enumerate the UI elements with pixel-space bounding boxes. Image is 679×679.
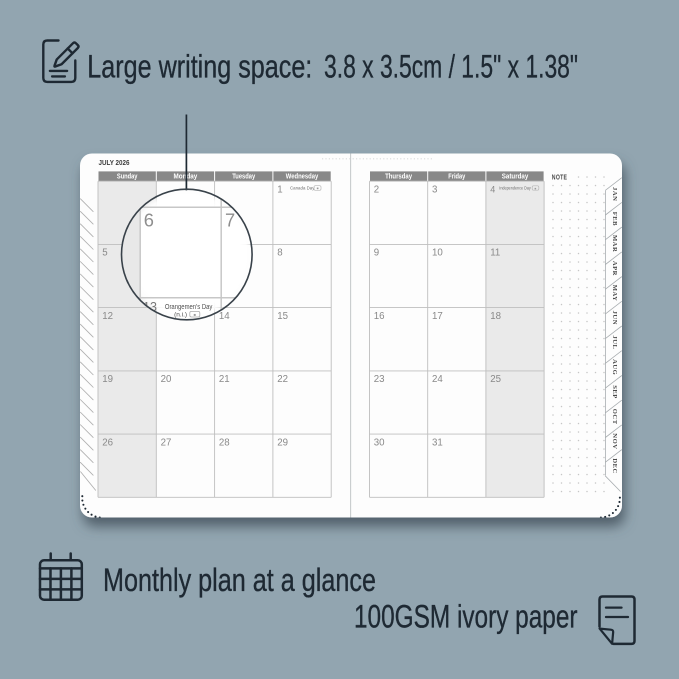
svg-text:28: 28 bbox=[219, 437, 230, 448]
svg-text:25: 25 bbox=[490, 374, 501, 385]
svg-text:11: 11 bbox=[490, 248, 500, 259]
svg-text:14: 14 bbox=[219, 311, 230, 322]
svg-text:Friday: Friday bbox=[448, 174, 465, 181]
svg-text:7: 7 bbox=[225, 210, 235, 231]
svg-text:SEP: SEP bbox=[611, 385, 618, 399]
svg-text:5: 5 bbox=[102, 248, 107, 259]
svg-text:3: 3 bbox=[432, 185, 437, 196]
svg-text:26: 26 bbox=[102, 437, 113, 448]
svg-text:Sunday: Sunday bbox=[117, 174, 138, 181]
svg-text:9: 9 bbox=[374, 248, 379, 259]
svg-text:4: 4 bbox=[490, 185, 495, 195]
svg-text:10: 10 bbox=[432, 248, 443, 259]
svg-text:Monthly plan at a glance: Monthly plan at a glance bbox=[103, 562, 376, 598]
svg-text:(n.i.): (n.i.) bbox=[174, 312, 187, 319]
svg-text:FEB: FEB bbox=[611, 212, 618, 226]
svg-text:Orangemen's Day: Orangemen's Day bbox=[165, 304, 213, 311]
svg-text:8: 8 bbox=[277, 248, 282, 259]
svg-text:AUG: AUG bbox=[611, 359, 618, 375]
svg-text:DEC: DEC bbox=[611, 458, 618, 473]
svg-text:Monday: Monday bbox=[174, 174, 198, 181]
svg-text:15: 15 bbox=[277, 311, 288, 322]
svg-text:JULY 2026: JULY 2026 bbox=[99, 160, 130, 167]
svg-text:Saturday: Saturday bbox=[502, 174, 529, 181]
svg-text:■: ■ bbox=[316, 186, 318, 190]
svg-text:Canada Day: Canada Day bbox=[290, 185, 315, 190]
svg-text:6: 6 bbox=[144, 210, 154, 231]
svg-text:27: 27 bbox=[161, 437, 172, 448]
svg-text:16: 16 bbox=[374, 311, 385, 322]
svg-text:JAN: JAN bbox=[611, 187, 618, 201]
svg-text:■: ■ bbox=[535, 186, 537, 190]
svg-text:JUN: JUN bbox=[611, 311, 618, 325]
svg-text:NOTE: NOTE bbox=[552, 172, 568, 181]
svg-text:30: 30 bbox=[374, 437, 385, 448]
svg-text:1: 1 bbox=[277, 185, 282, 196]
svg-text:19: 19 bbox=[102, 374, 113, 385]
svg-text:18: 18 bbox=[490, 311, 501, 322]
svg-text:Large writing space:: Large writing space: bbox=[87, 48, 312, 84]
svg-text:12: 12 bbox=[102, 311, 113, 322]
svg-text:Independence Day: Independence Day bbox=[499, 186, 531, 191]
svg-text:NOV: NOV bbox=[611, 433, 618, 449]
svg-text:APR: APR bbox=[611, 261, 618, 276]
svg-text:JUL: JUL bbox=[611, 336, 618, 350]
svg-text:2: 2 bbox=[374, 185, 379, 196]
svg-text:Wednesday: Wednesday bbox=[286, 174, 319, 181]
svg-text:100GSM ivory paper: 100GSM ivory paper bbox=[354, 598, 578, 634]
svg-text:24: 24 bbox=[432, 374, 443, 385]
svg-text:17: 17 bbox=[432, 311, 443, 322]
svg-text:31: 31 bbox=[432, 437, 443, 448]
svg-text:OCT: OCT bbox=[611, 409, 618, 425]
svg-text:29: 29 bbox=[277, 437, 288, 448]
svg-text:MAR: MAR bbox=[611, 235, 618, 252]
svg-text:3.8 x 3.5cm / 1.5" x 1.38": 3.8 x 3.5cm / 1.5" x 1.38" bbox=[324, 48, 578, 84]
svg-text:22: 22 bbox=[277, 374, 288, 385]
svg-text:MAY: MAY bbox=[611, 285, 618, 302]
svg-text:Tuesday: Tuesday bbox=[232, 174, 255, 181]
svg-text:21: 21 bbox=[219, 374, 230, 385]
svg-text:Thursday: Thursday bbox=[385, 174, 412, 181]
svg-text:20: 20 bbox=[161, 374, 172, 385]
svg-text:23: 23 bbox=[374, 374, 385, 385]
